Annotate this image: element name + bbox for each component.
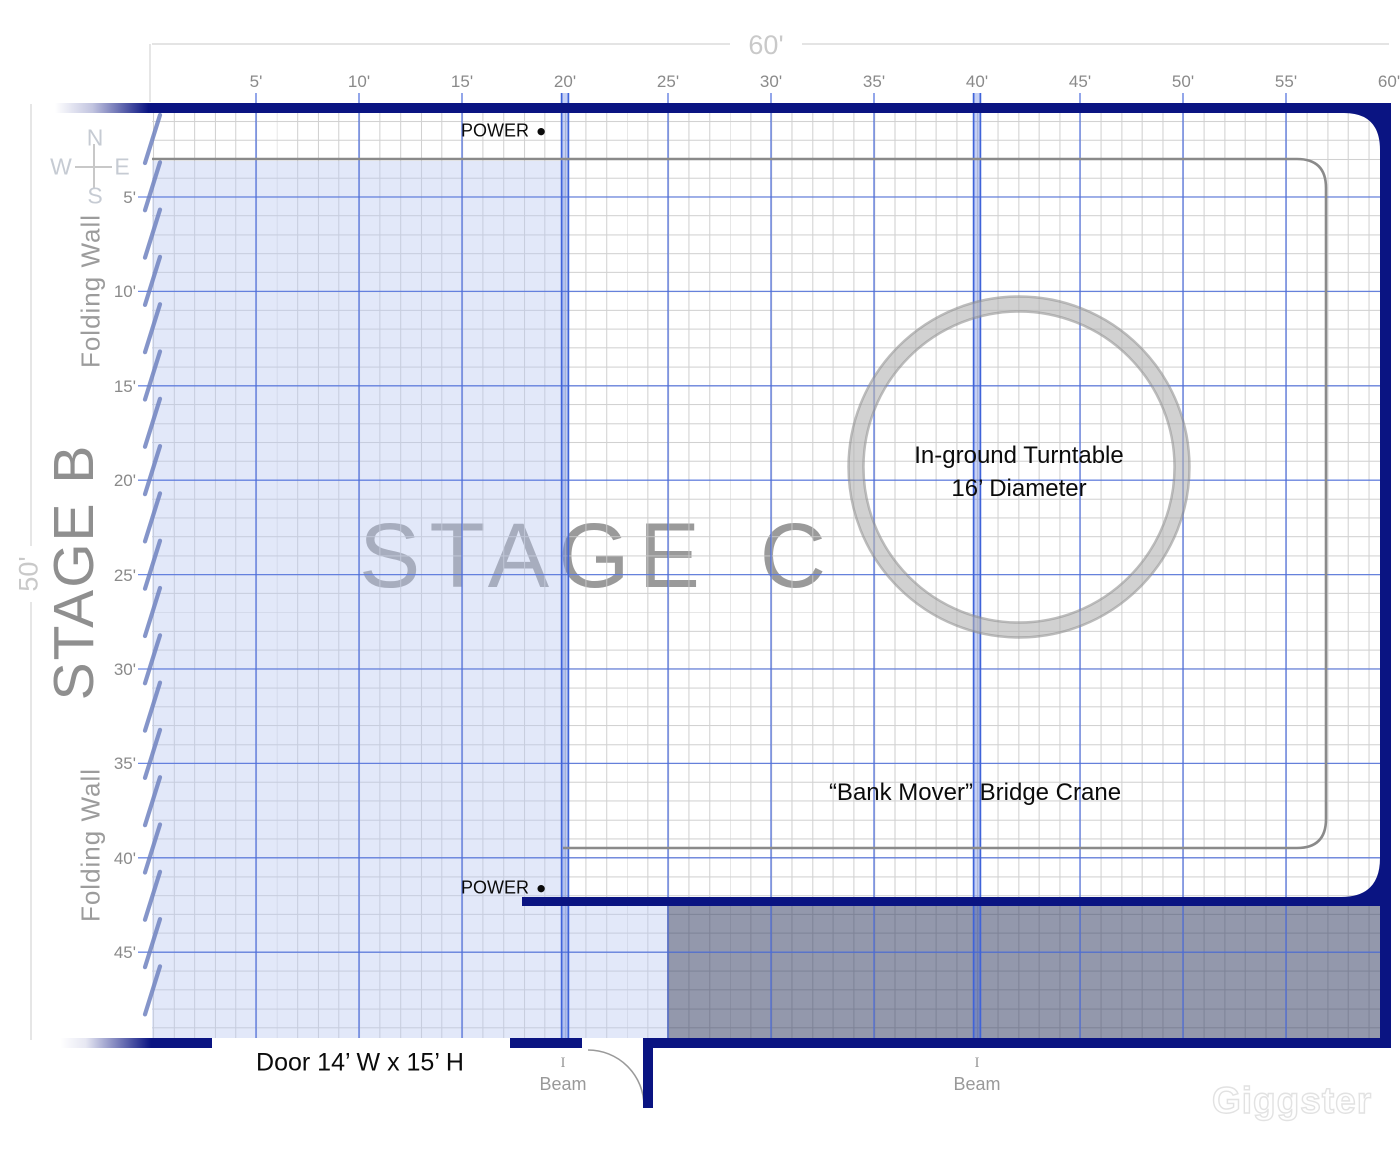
- turntable-line1: In-ground Turntable: [914, 439, 1123, 472]
- power-text: POWER: [461, 121, 529, 142]
- turntable-label: In-ground Turntable 16’ Diameter: [914, 439, 1123, 505]
- beam-label: Beam: [539, 1075, 586, 1094]
- power-dot-icon: ●: [536, 880, 546, 897]
- folding-wall-upper-label: Folding Wall: [76, 214, 107, 368]
- stage-c-floorplan: STAGE C: [0, 0, 1400, 1157]
- compass-w: W: [50, 154, 72, 181]
- bottom-wall-left: [60, 1038, 212, 1048]
- top-ruler-tick-label: 20': [554, 72, 576, 92]
- power-text: POWER: [461, 878, 529, 899]
- mid-wall: [522, 897, 1391, 906]
- top-wall: [55, 103, 1391, 113]
- top-dimension-label: 60': [748, 30, 783, 61]
- compass-e: E: [114, 154, 129, 181]
- folding-wall-lower-label: Folding Wall: [76, 768, 107, 922]
- beam-line-band: [974, 93, 981, 1038]
- door-label: Door 14’ W x 15’ H: [256, 1049, 464, 1078]
- power-dot-icon: ●: [536, 123, 546, 140]
- storage-strip-fill: [667, 906, 1380, 1038]
- stage-b-open-zone-fill-lower: [152, 906, 667, 1038]
- left-dimension-label: 50': [14, 556, 45, 591]
- top-right-corner: [1344, 113, 1380, 150]
- left-ruler-tick-label: 15': [96, 377, 136, 397]
- giggster-watermark: Giggster: [1212, 1080, 1372, 1122]
- top-ruler-tick-label: 25': [657, 72, 679, 92]
- ibeam-icon: I: [539, 1054, 586, 1073]
- compass-n: N: [87, 125, 104, 152]
- top-ruler-tick-label: 10': [348, 72, 370, 92]
- beam-label: Beam: [953, 1075, 1000, 1094]
- mid-wall-fillet: [1341, 858, 1380, 897]
- top-ruler-tick-label: 35': [863, 72, 885, 92]
- turntable-line2: 16’ Diameter: [914, 472, 1123, 505]
- top-ruler-tick-label: 30': [760, 72, 782, 92]
- plan-drawing: [0, 0, 1400, 1157]
- stage-b-title: STAGE B: [41, 444, 107, 701]
- top-ruler-tick-label: 15': [451, 72, 473, 92]
- beam-callout-2: I Beam: [953, 1054, 1000, 1094]
- ibeam-icon: I: [953, 1054, 1000, 1073]
- door-swing-arc: [588, 1050, 644, 1106]
- folding-wall-hatch-mark: [145, 115, 160, 163]
- top-ruler-tick-label: 5': [250, 72, 263, 92]
- top-ruler-tick-label: 55': [1275, 72, 1297, 92]
- compass-s: S: [87, 183, 102, 210]
- beam-line-band: [562, 93, 569, 1038]
- bottom-wall-right: [643, 1038, 1391, 1048]
- top-ruler-tick-label: 60': [1378, 72, 1400, 92]
- top-ruler-tick-label: 40': [966, 72, 988, 92]
- bridge-crane-label: “Bank Mover” Bridge Crane: [829, 779, 1121, 807]
- left-ruler-tick-label: 45': [96, 943, 136, 963]
- top-ruler-tick-label: 50': [1172, 72, 1194, 92]
- top-ruler-tick-label: 45': [1069, 72, 1091, 92]
- power-label-bottom: POWER ●: [461, 878, 546, 899]
- beam-callout-1: I Beam: [539, 1054, 586, 1094]
- bottom-wall-center: [510, 1038, 582, 1048]
- power-label-top: POWER ●: [461, 121, 546, 142]
- right-wall: [1380, 103, 1391, 1048]
- door-jamb: [643, 1038, 653, 1108]
